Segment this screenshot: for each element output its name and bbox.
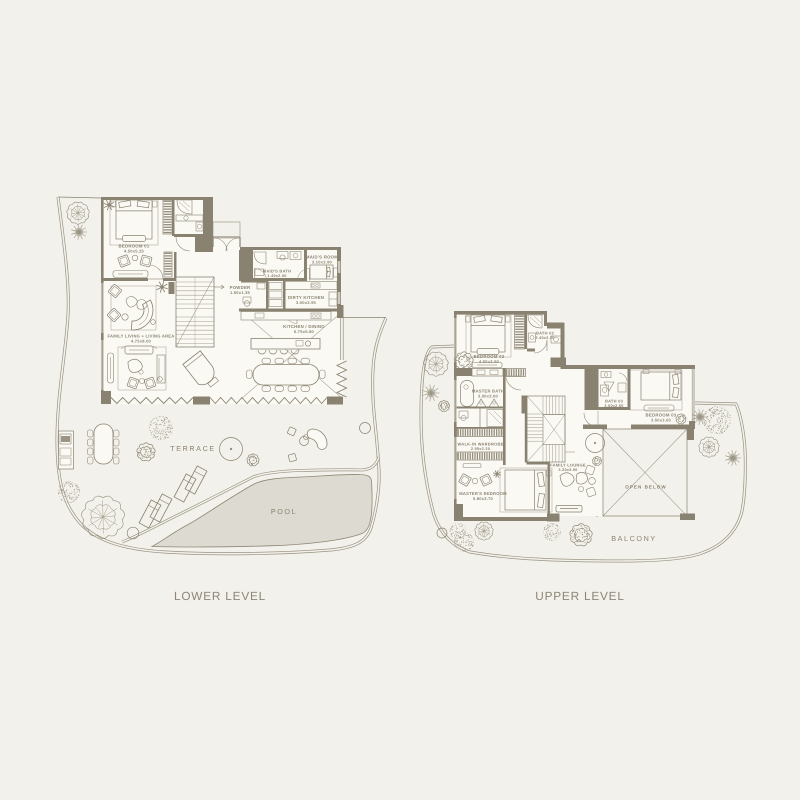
svg-text:1.40x2.00: 1.40x2.00 xyxy=(267,274,286,278)
svg-text:BATH 02: BATH 02 xyxy=(536,331,555,336)
svg-text:BATH 03: BATH 03 xyxy=(605,399,624,404)
svg-text:MAID'S BATH: MAID'S BATH xyxy=(263,268,292,273)
svg-text:FAMILY LOUNGE: FAMILY LOUNGE xyxy=(550,463,586,468)
svg-text:4.50x3.50: 4.50x3.50 xyxy=(479,359,500,364)
svg-text:UPPER LEVEL: UPPER LEVEL xyxy=(535,589,624,603)
svg-text:4.50x5.25: 4.50x5.25 xyxy=(124,249,145,254)
svg-text:2.40x2.20: 2.40x2.20 xyxy=(535,336,554,340)
svg-text:WALK-IN WARDROBE: WALK-IN WARDROBE xyxy=(458,442,504,447)
svg-text:OPEN BELOW: OPEN BELOW xyxy=(625,485,666,490)
svg-text:3.50x3.65: 3.50x3.65 xyxy=(651,418,672,423)
svg-text:3.00x3.95: 3.00x3.95 xyxy=(296,300,317,305)
svg-text:3.90x3.00: 3.90x3.00 xyxy=(478,393,499,398)
svg-text:6.75x5.80: 6.75x5.80 xyxy=(294,329,315,334)
svg-text:3.20x3.00: 3.20x3.00 xyxy=(558,468,577,472)
svg-text:2.00x2.65: 2.00x2.65 xyxy=(604,404,623,408)
svg-text:3.10x3.90: 3.10x3.90 xyxy=(312,260,333,265)
svg-text:1.50x1.35: 1.50x1.35 xyxy=(230,290,251,295)
svg-text:LOWER LEVEL: LOWER LEVEL xyxy=(174,589,266,603)
svg-text:2.95x2.20: 2.95x2.20 xyxy=(471,447,490,451)
svg-text:BALCONY: BALCONY xyxy=(611,534,657,543)
svg-text:5.80x3.70: 5.80x3.70 xyxy=(473,496,494,501)
svg-text:TERRACE: TERRACE xyxy=(170,444,216,453)
svg-text:4.75x8.00: 4.75x8.00 xyxy=(131,339,152,344)
svg-text:POOL: POOL xyxy=(271,507,297,516)
